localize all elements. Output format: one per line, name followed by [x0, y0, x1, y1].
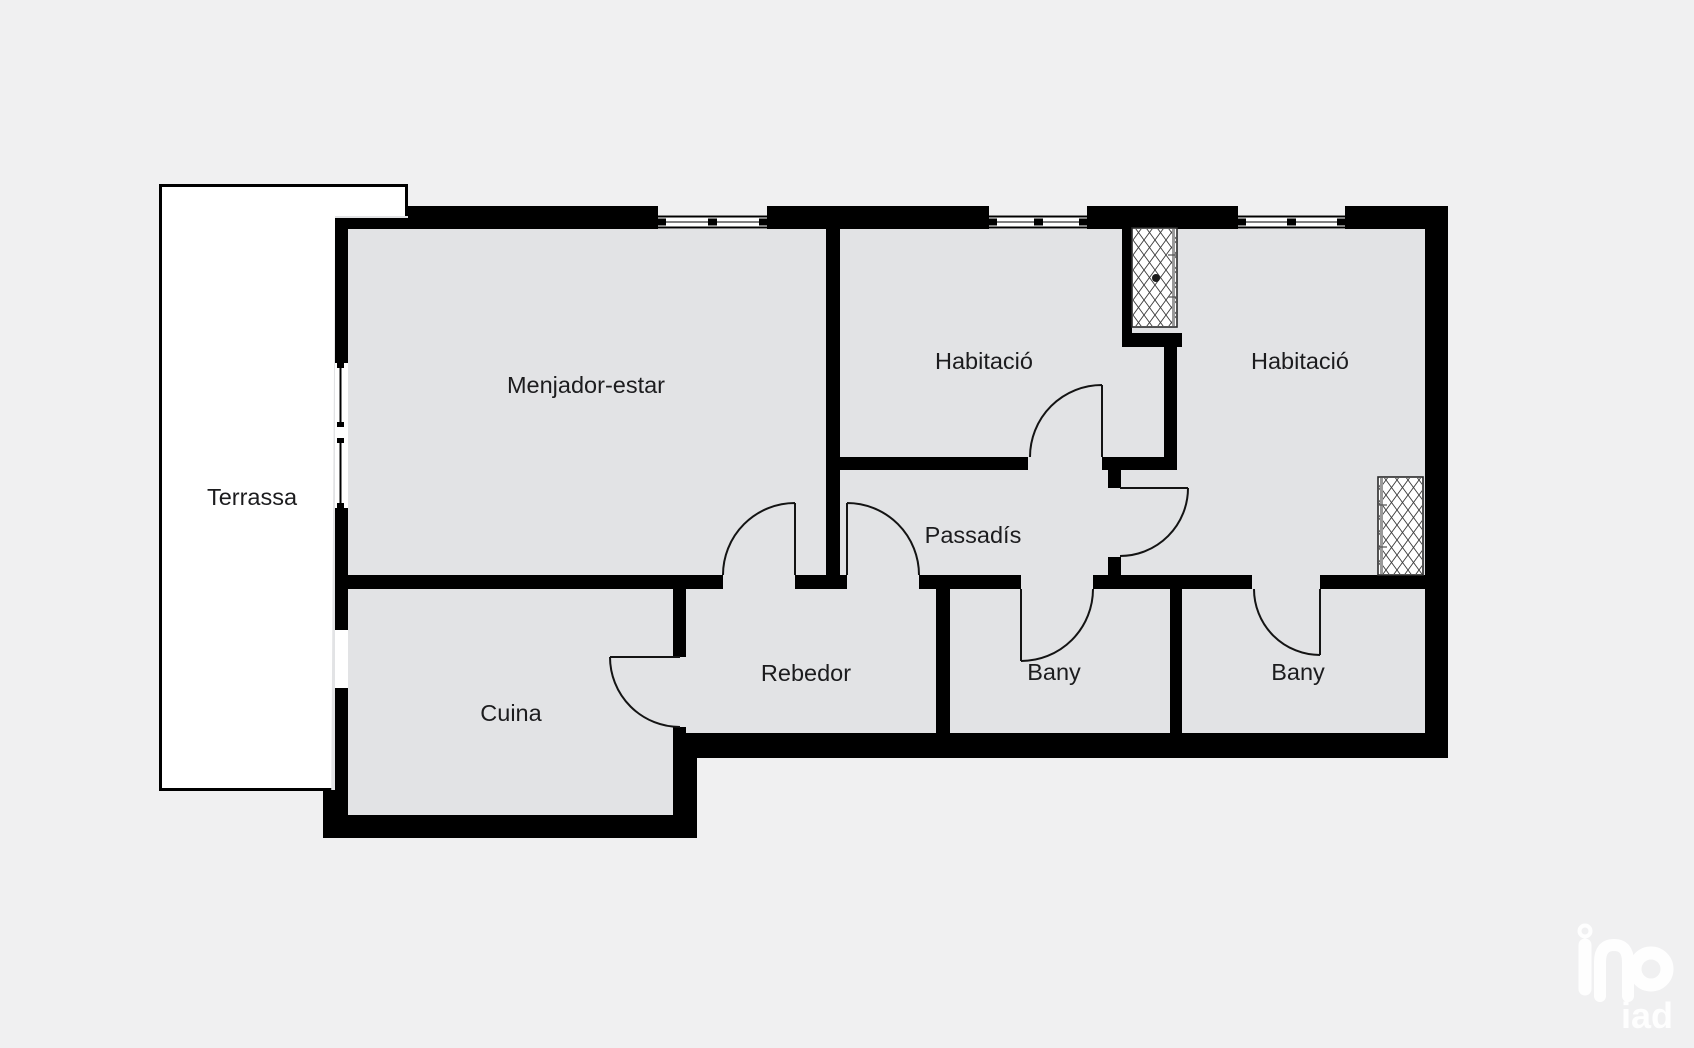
iad-logo-text: iad [1621, 995, 1673, 1036]
room-label-cuina: Cuina [480, 700, 542, 726]
window-terrace-mullion-gap [335, 427, 348, 438]
window-top-living [658, 215, 767, 229]
iad-logo-i-dot [1580, 926, 1591, 937]
room-label-menjador-estar: Menjador-estar [507, 372, 665, 398]
room-label-habitacio-1: Habitació [935, 348, 1033, 374]
room-label-terrassa: Terrassa [207, 484, 298, 510]
window-terrace-living-1 [335, 363, 348, 427]
room-label-bany-1: Bany [1027, 659, 1081, 685]
terrace-kitchen-opening [335, 630, 348, 688]
window-terrace-living-2 [335, 438, 348, 508]
room-label-rebedor: Rebedor [761, 660, 851, 686]
wardrobe-bedroom-1 [1132, 228, 1177, 327]
floorplan-drawing: TerrassaMenjador-estarHabitacióHabitació… [0, 0, 1694, 1048]
window-top-bedroom-1 [989, 215, 1087, 229]
floorplan-page: TerrassaMenjador-estarHabitacióHabitació… [0, 0, 1694, 1048]
iad-logo-ring [1635, 953, 1667, 985]
room-label-bany-2: Bany [1271, 659, 1325, 685]
window-top-bedroom-2 [1238, 215, 1345, 229]
iad-logo: iad [1580, 926, 1674, 1037]
iad-logo-arch [1600, 945, 1628, 996]
room-label-passadis: Passadís [925, 522, 1022, 548]
wardrobe-bedroom-2 [1378, 477, 1423, 575]
room-label-habitacio-2: Habitació [1251, 348, 1349, 374]
